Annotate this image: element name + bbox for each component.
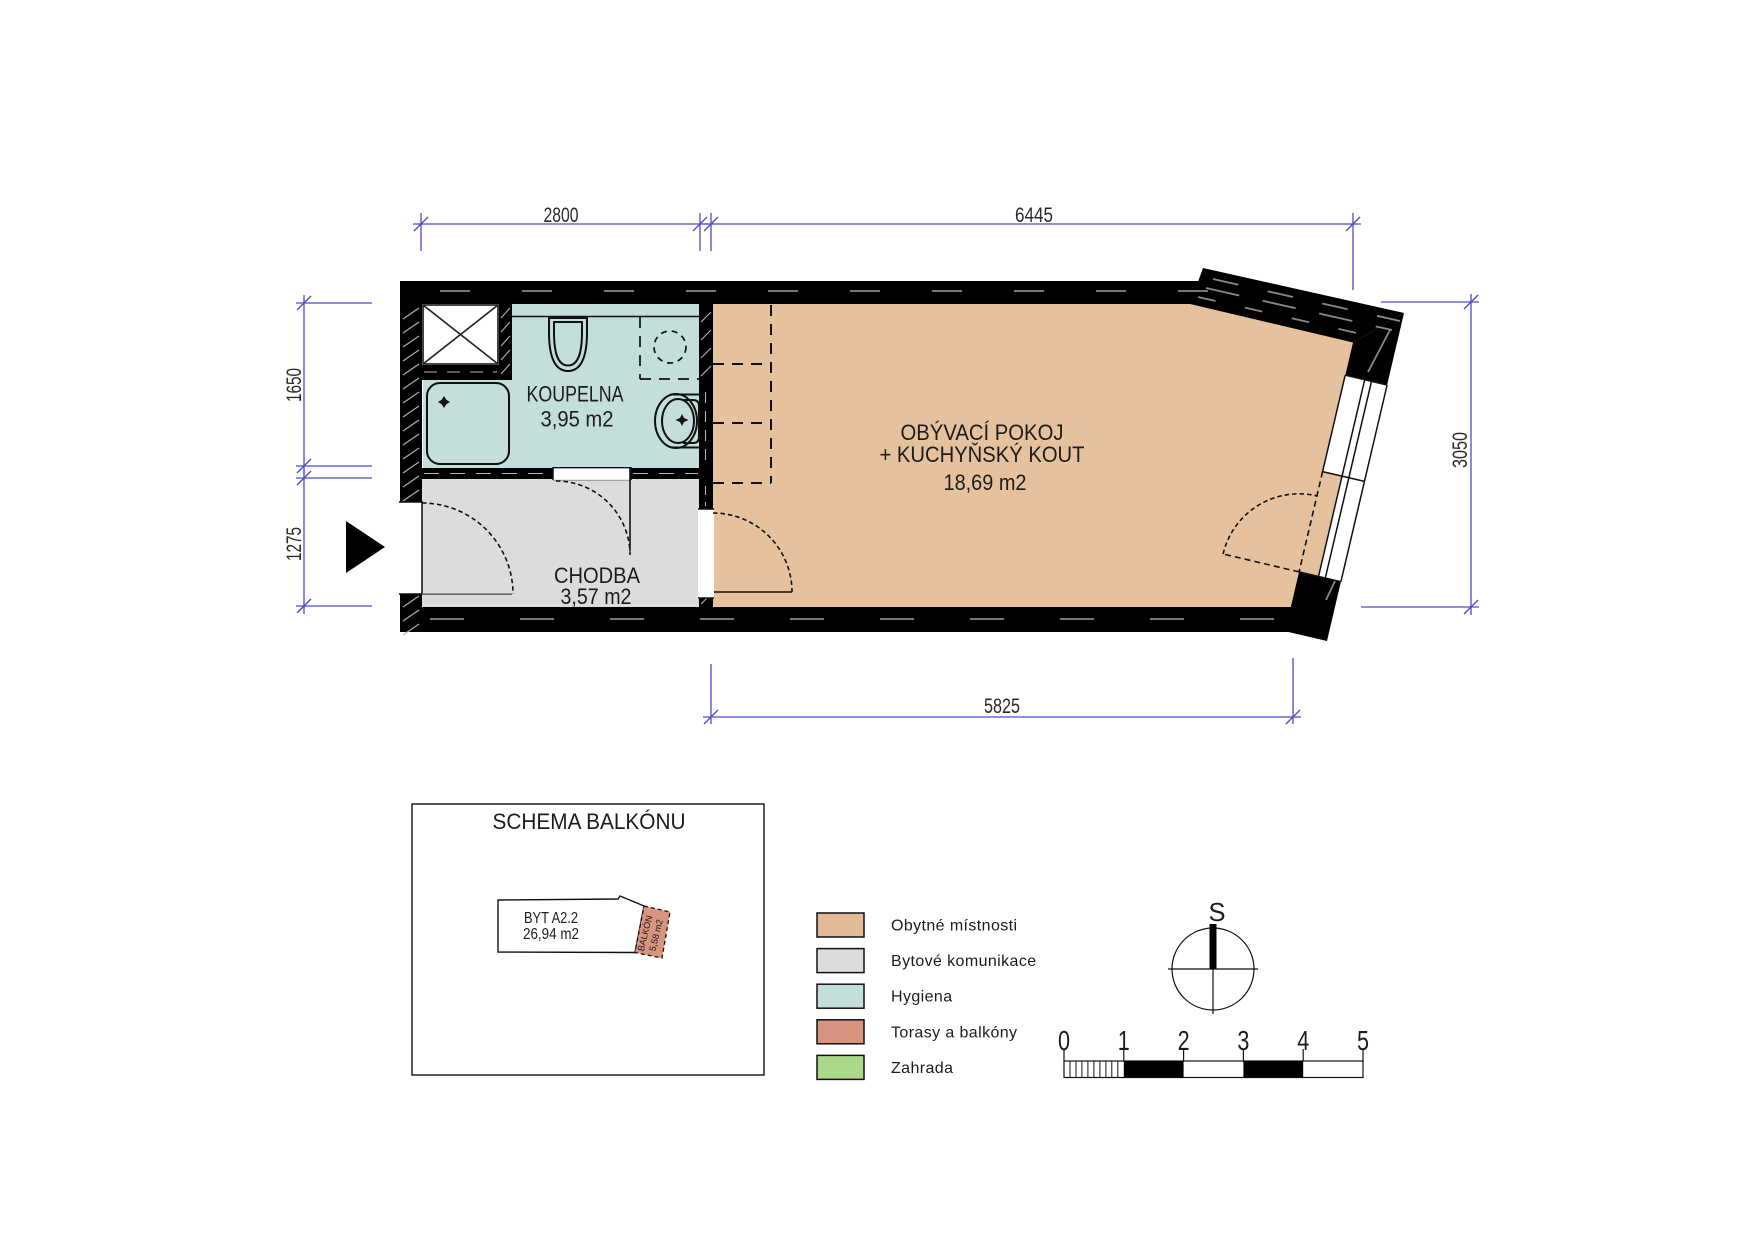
svg-text:BYT A2.2: BYT A2.2 bbox=[524, 910, 578, 927]
svg-text:2800: 2800 bbox=[544, 204, 579, 227]
svg-text:1: 1 bbox=[1118, 1025, 1130, 1056]
svg-text:+ KUCHYŇSKÝ KOUT: + KUCHYŇSKÝ KOUT bbox=[880, 442, 1085, 467]
svg-text:0: 0 bbox=[1058, 1025, 1070, 1056]
svg-text:5: 5 bbox=[1357, 1025, 1369, 1056]
svg-text:6445: 6445 bbox=[1015, 204, 1053, 227]
svg-text:5825: 5825 bbox=[984, 695, 1020, 718]
svg-text:Torasy a balkóny: Torasy a balkóny bbox=[891, 1024, 1017, 1041]
svg-text:1275: 1275 bbox=[283, 527, 306, 561]
svg-text:3050: 3050 bbox=[1449, 432, 1472, 468]
svg-text:4: 4 bbox=[1297, 1025, 1309, 1056]
svg-text:KOUPELNA: KOUPELNA bbox=[527, 382, 624, 407]
svg-text:18,69 m2: 18,69 m2 bbox=[944, 470, 1027, 495]
svg-text:Bytové komunikace: Bytové komunikace bbox=[891, 953, 1037, 970]
svg-text:S: S bbox=[1208, 899, 1225, 927]
svg-text:Zahrada: Zahrada bbox=[891, 1060, 953, 1077]
svg-text:3,57 m2: 3,57 m2 bbox=[561, 584, 632, 609]
svg-text:26,94 m2: 26,94 m2 bbox=[523, 926, 579, 943]
svg-text:2: 2 bbox=[1178, 1025, 1190, 1056]
svg-text:1650: 1650 bbox=[283, 368, 306, 402]
svg-text:Hygiena: Hygiena bbox=[891, 989, 953, 1006]
svg-text:3,95 m2: 3,95 m2 bbox=[541, 407, 614, 432]
svg-text:SCHEMA BALKÓNU: SCHEMA BALKÓNU bbox=[493, 809, 686, 834]
svg-text:3: 3 bbox=[1237, 1025, 1249, 1056]
svg-text:Obytné místnosti: Obytné místnosti bbox=[891, 918, 1017, 935]
